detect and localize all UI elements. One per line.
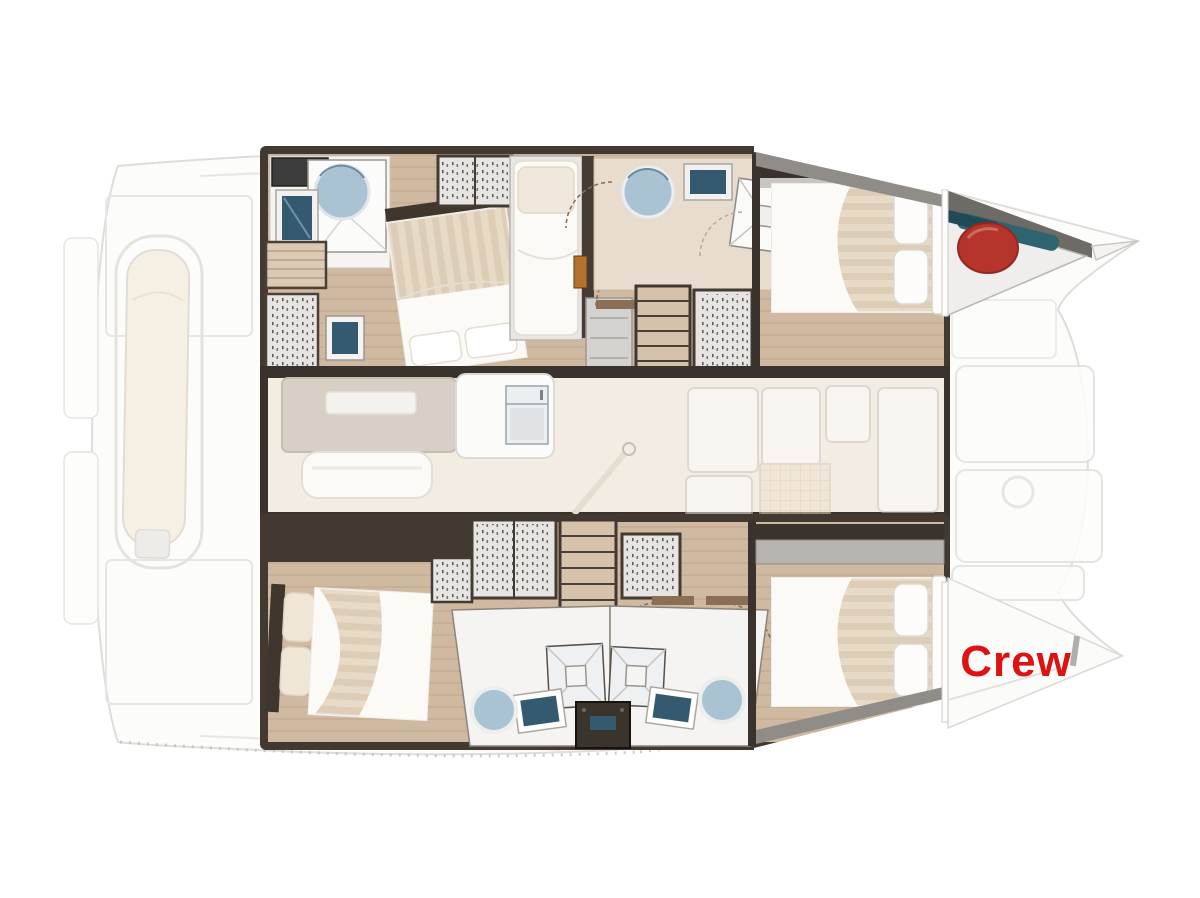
- pillow: [280, 646, 312, 696]
- pillow: [409, 330, 463, 367]
- foredeck-faded: [952, 300, 1102, 600]
- technical-box: [576, 702, 630, 748]
- tender-dinghy: [122, 249, 189, 558]
- floor-plan-canvas: Crew: [0, 0, 1200, 898]
- sink-icon: [513, 689, 566, 733]
- sink-icon: [646, 687, 699, 729]
- door-leaf: [596, 300, 640, 309]
- wardrobe-detail: [698, 294, 748, 368]
- galley-counter: [282, 378, 456, 452]
- red-fender-icon: [958, 223, 1018, 273]
- toilet-icon: [700, 678, 744, 722]
- wardrobe-detail: [626, 538, 676, 594]
- transom-step-lower: [64, 452, 98, 624]
- bow-bulkhead: [942, 582, 948, 722]
- door-leaf: [706, 596, 748, 605]
- pillow: [894, 250, 928, 304]
- sofa: [302, 452, 432, 498]
- bow-bulkhead: [942, 190, 948, 316]
- wardrobe-detail: [435, 561, 469, 599]
- port-aft-cabin-bed: [385, 192, 527, 373]
- crew-label: Crew: [960, 637, 1072, 686]
- companionway-stairs: [560, 520, 616, 612]
- sink-icon: [276, 190, 318, 246]
- foredeck-sunpad-upper: [956, 366, 1094, 462]
- transom-step-upper: [64, 238, 98, 418]
- shelf-unit: [266, 242, 326, 288]
- corridor-seat: [586, 298, 632, 372]
- saloon: [260, 366, 950, 526]
- stbd-aft-wall-thick: [262, 516, 472, 562]
- crew-shelf-dark: [756, 524, 944, 540]
- pillow: [894, 644, 928, 696]
- fridge-icon: [506, 386, 548, 444]
- cabin-divider: [748, 520, 756, 746]
- berth-pillow: [518, 167, 574, 213]
- crew-cabin-bed: [772, 576, 946, 708]
- crew-shelf-gray: [756, 540, 944, 564]
- door-leaf: [652, 596, 694, 605]
- door-jamb: [574, 256, 587, 288]
- sink-icon: [684, 164, 732, 200]
- drawer-detail: [269, 298, 315, 366]
- cabin-divider: [752, 150, 760, 378]
- pillow: [894, 584, 928, 636]
- seat-sink-icon: [326, 316, 364, 360]
- foredeck-panel: [952, 300, 1056, 358]
- dinette-faded: [686, 386, 938, 526]
- single-berth: [510, 156, 582, 340]
- pillow: [282, 593, 314, 643]
- yacht-layout-diagram: Crew: [0, 0, 1200, 898]
- companionway-stairs: [636, 286, 690, 374]
- galley-island: [456, 374, 554, 458]
- stbd-bathroom-right: [609, 606, 768, 746]
- toilet-icon: [472, 688, 516, 732]
